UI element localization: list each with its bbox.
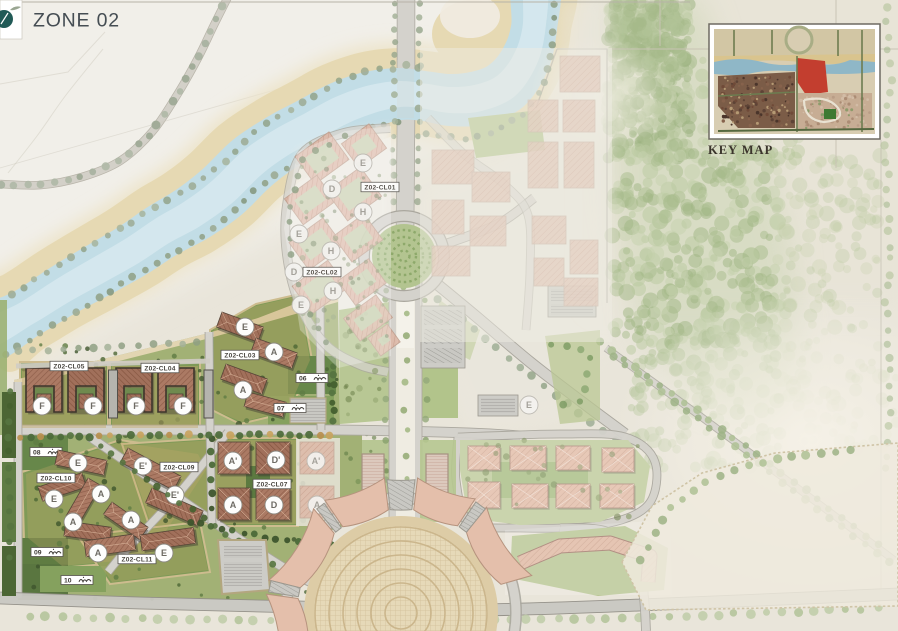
svg-text:08: 08 — [33, 450, 41, 457]
svg-text:Z02-CL03: Z02-CL03 — [224, 352, 255, 359]
svg-text:E': E' — [139, 461, 147, 471]
svg-text:F: F — [39, 401, 45, 411]
svg-text:E: E — [360, 158, 366, 168]
svg-text:06: 06 — [299, 376, 307, 383]
svg-text:F: F — [133, 401, 139, 411]
svg-text:E: E — [526, 400, 532, 410]
svg-text:Z02-CL05: Z02-CL05 — [53, 363, 84, 370]
svg-text:Z02-CL04: Z02-CL04 — [144, 365, 175, 372]
svg-text:Z02-CL01: Z02-CL01 — [364, 184, 395, 191]
svg-text:ZONE 02: ZONE 02 — [33, 10, 120, 32]
svg-text:D': D' — [272, 455, 281, 465]
svg-text:D: D — [291, 267, 298, 277]
svg-text:Z02-CL11: Z02-CL11 — [122, 556, 153, 563]
svg-text:A: A — [95, 548, 102, 558]
svg-text:E: E — [296, 229, 302, 239]
svg-text:Z02-CL02: Z02-CL02 — [306, 269, 337, 276]
svg-text:D: D — [329, 184, 336, 194]
svg-text:E': E' — [171, 490, 179, 500]
svg-text:Z02-CL10: Z02-CL10 — [40, 475, 71, 482]
svg-text:Z02-CL09: Z02-CL09 — [163, 464, 194, 471]
svg-text:A': A' — [312, 456, 321, 466]
svg-text:A: A — [70, 517, 77, 527]
svg-text:09: 09 — [34, 550, 42, 557]
svg-text:D: D — [271, 500, 278, 510]
svg-text:A: A — [271, 347, 278, 357]
svg-text:A': A' — [229, 456, 238, 466]
svg-text:A: A — [128, 515, 135, 525]
svg-text:F: F — [90, 401, 96, 411]
svg-text:H: H — [330, 286, 337, 296]
svg-text:A: A — [98, 489, 105, 499]
svg-text:E: E — [75, 458, 81, 468]
svg-text:07: 07 — [277, 406, 285, 413]
svg-text:H: H — [328, 246, 335, 256]
svg-text:E: E — [242, 322, 248, 332]
svg-text:10: 10 — [64, 578, 72, 585]
svg-text:Z02-CL07: Z02-CL07 — [256, 481, 287, 488]
svg-text:KEY MAP: KEY MAP — [708, 143, 773, 157]
svg-text:E: E — [51, 494, 57, 504]
svg-text:E: E — [298, 300, 304, 310]
svg-text:F: F — [180, 401, 186, 411]
svg-text:E: E — [161, 548, 167, 558]
svg-text:A: A — [240, 385, 247, 395]
svg-text:A: A — [230, 500, 237, 510]
svg-text:H: H — [360, 207, 367, 217]
